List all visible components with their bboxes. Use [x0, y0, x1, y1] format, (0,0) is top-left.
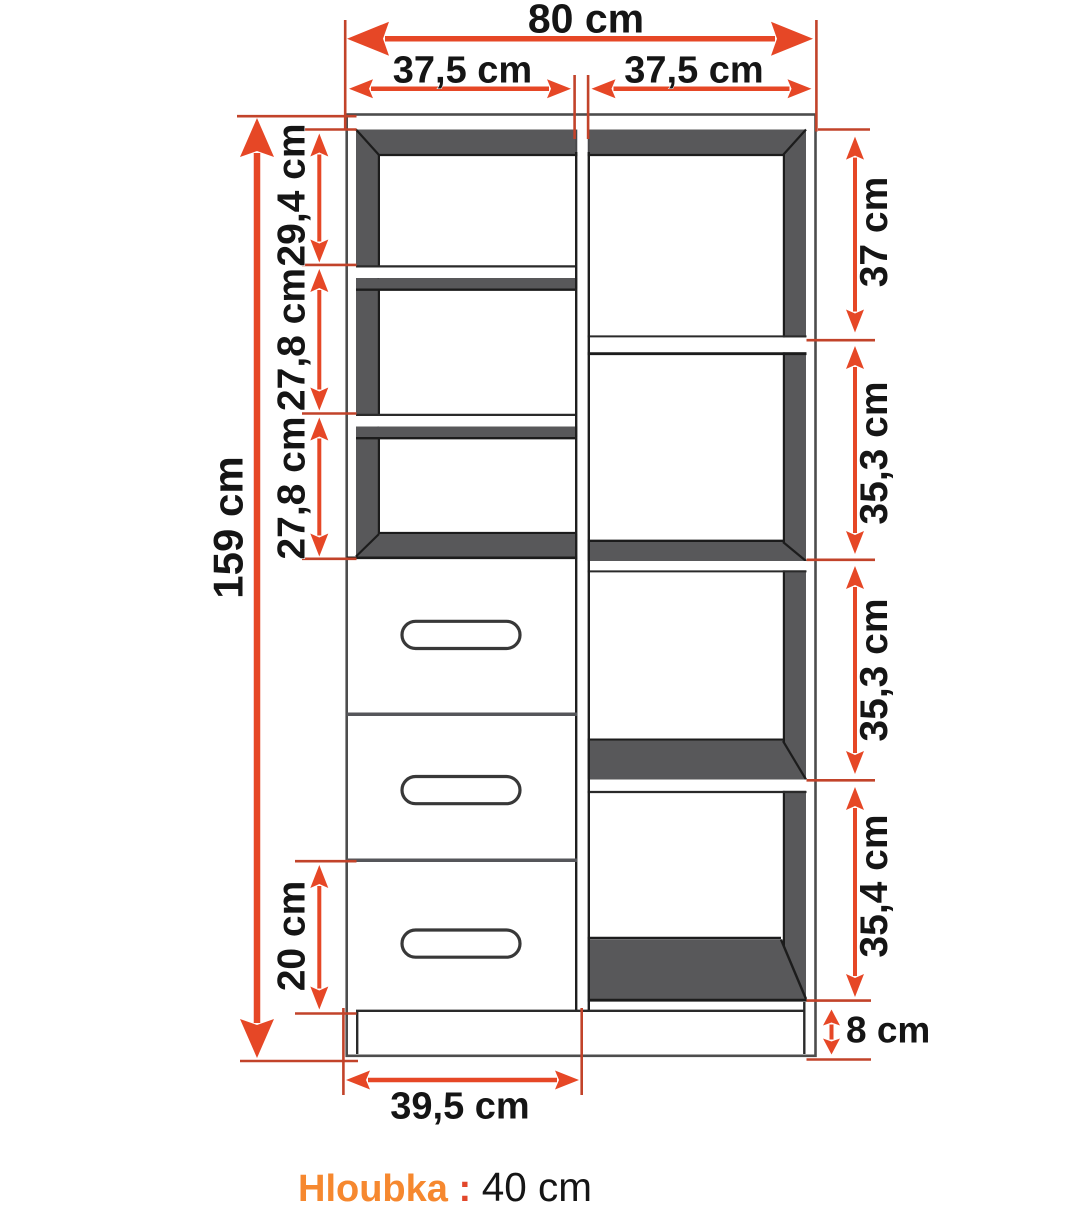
svg-text:27,8 cm: 27,8 cm [271, 416, 314, 559]
svg-text:8 cm: 8 cm [846, 1010, 930, 1051]
svg-text:37 cm: 37 cm [853, 177, 896, 288]
svg-text:29,4 cm: 29,4 cm [271, 123, 314, 266]
svg-text:35,3 cm: 35,3 cm [853, 598, 896, 741]
svg-text:35,4 cm: 35,4 cm [853, 814, 896, 957]
svg-text:Hloubka : 40 cm: Hloubka : 40 cm [298, 1164, 592, 1210]
svg-text:159 cm: 159 cm [205, 456, 252, 598]
svg-text:37,5 cm: 37,5 cm [624, 50, 763, 92]
svg-text:35,3 cm: 35,3 cm [853, 381, 896, 524]
svg-text:20 cm: 20 cm [271, 881, 314, 992]
svg-text:39,5 cm: 39,5 cm [390, 1086, 529, 1128]
svg-text:80 cm: 80 cm [528, 0, 644, 42]
svg-text:37,5 cm: 37,5 cm [393, 50, 532, 92]
svg-text:27,8 cm: 27,8 cm [271, 268, 314, 411]
